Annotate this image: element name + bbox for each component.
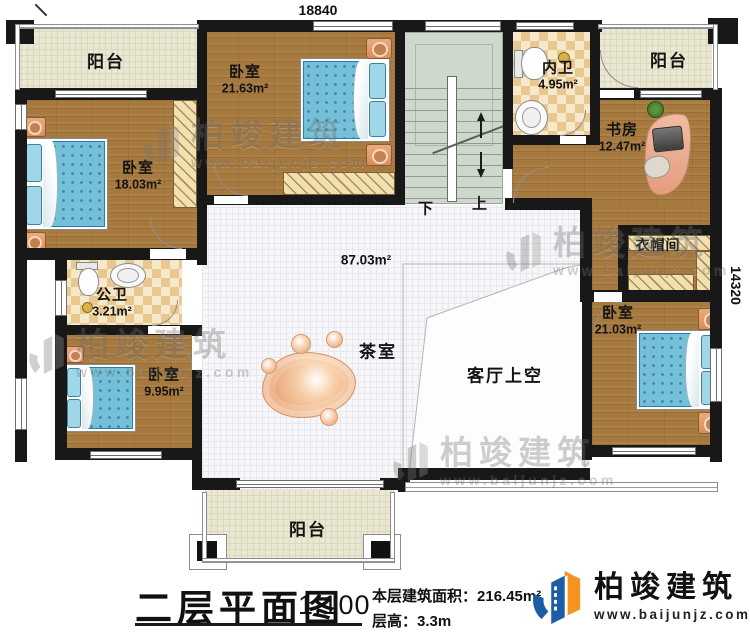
wall bbox=[618, 232, 628, 298]
wall bbox=[403, 468, 590, 480]
wall bbox=[395, 20, 405, 205]
floor-plan-canvas: 18840 14320 bbox=[0, 0, 750, 639]
room-area: 4.95m² bbox=[538, 77, 578, 91]
window bbox=[55, 90, 147, 98]
pebble bbox=[326, 331, 343, 348]
room-label-bedroom-right: 卧室21.03m² bbox=[595, 306, 642, 337]
logo-brand-text: 柏竣建筑 bbox=[594, 573, 750, 603]
wall bbox=[582, 300, 592, 460]
door-gap bbox=[148, 326, 180, 334]
nightstand bbox=[366, 38, 392, 59]
room-name: 卧室 bbox=[602, 306, 634, 323]
sink-icon bbox=[110, 263, 146, 288]
floor-area-label: 本层建筑面积： bbox=[372, 588, 477, 605]
balcony-railing bbox=[390, 492, 395, 562]
wall bbox=[710, 88, 722, 462]
bed-bedroom-left bbox=[22, 138, 108, 230]
room-name: 书房 bbox=[606, 123, 638, 140]
window bbox=[516, 22, 574, 30]
window bbox=[15, 104, 27, 130]
logo-building-icon bbox=[530, 568, 584, 626]
wall bbox=[618, 225, 722, 235]
bed-bedroom-bottom-left bbox=[64, 364, 136, 432]
door-gap bbox=[560, 136, 586, 144]
room-area: 9.95m² bbox=[144, 384, 184, 398]
room-label-tea-room: 茶室 bbox=[359, 342, 397, 361]
wall bbox=[192, 478, 240, 490]
sliding-door bbox=[236, 480, 384, 488]
nightstand bbox=[64, 346, 84, 363]
balcony-railing bbox=[202, 492, 207, 562]
drawing-scale: 1:100 bbox=[298, 590, 371, 621]
room-label-cloakroom: 衣帽间 bbox=[636, 238, 681, 254]
stair-arrow-up-stem bbox=[480, 120, 482, 138]
balcony-railing bbox=[713, 24, 718, 90]
door-gap bbox=[192, 336, 202, 370]
window bbox=[15, 378, 27, 430]
stair-up-text: 上 bbox=[472, 197, 488, 214]
dimension-top: 18840 bbox=[288, 2, 348, 18]
computer-monitor-icon bbox=[652, 125, 684, 152]
room-label-inner-bath: 内卫4.95m² bbox=[538, 61, 578, 92]
window bbox=[90, 451, 162, 459]
pebble bbox=[320, 408, 338, 426]
window bbox=[710, 348, 722, 402]
stair-label-up: 上 bbox=[472, 197, 488, 214]
door-gap bbox=[600, 90, 634, 98]
stair-label-down: 下 bbox=[418, 202, 434, 219]
balcony-column bbox=[363, 534, 401, 570]
bed-bedroom-right bbox=[636, 330, 720, 410]
room-area: 21.63m² bbox=[222, 81, 269, 95]
room-area: 3.21m² bbox=[92, 304, 132, 318]
title-underline bbox=[135, 623, 362, 626]
logo: 柏竣建筑 www.baijunjz.com bbox=[530, 568, 750, 626]
stair-arrow-down-icon bbox=[477, 169, 485, 178]
room-name: 卧室 bbox=[229, 65, 261, 82]
stair-arrow-down-stem bbox=[480, 152, 482, 170]
room-label-balcony-bottom: 阳台 bbox=[289, 520, 327, 539]
door-gap bbox=[214, 196, 248, 204]
pebble bbox=[291, 334, 311, 354]
room-name: 阳台 bbox=[650, 51, 688, 70]
room-name: 客厅上空 bbox=[467, 366, 543, 385]
balcony-column bbox=[189, 534, 227, 570]
wardrobe-bedroom-top bbox=[283, 172, 395, 195]
room-label-bedroom-top: 卧室21.63m² bbox=[222, 65, 269, 96]
room-label-living-void: 客厅上空 bbox=[467, 366, 543, 385]
window bbox=[313, 21, 393, 31]
logo-url-text: www.baijunjz.com bbox=[594, 607, 750, 622]
wall bbox=[512, 135, 600, 145]
hall-area-label: 87.03m² bbox=[341, 252, 391, 267]
balcony-railing bbox=[202, 558, 395, 563]
floor-height-info: 层高：3.3m bbox=[372, 610, 451, 631]
wall bbox=[580, 205, 592, 302]
hall-area-value: 87.03m² bbox=[341, 252, 391, 267]
window bbox=[612, 447, 696, 455]
pebble bbox=[261, 358, 277, 374]
window bbox=[425, 21, 501, 31]
nightstand bbox=[366, 144, 392, 166]
wall bbox=[197, 20, 207, 265]
room-name: 茶室 bbox=[359, 342, 397, 361]
window bbox=[640, 90, 702, 98]
stair-rail bbox=[447, 76, 457, 202]
bed-bedroom-top bbox=[300, 58, 390, 142]
floor-area-info: 本层建筑面积：216.45m² bbox=[372, 585, 541, 606]
wardrobe-bedroom-left bbox=[173, 100, 197, 208]
room-label-bedroom-left: 卧室18.03m² bbox=[115, 161, 162, 192]
room-name: 内卫 bbox=[542, 61, 574, 78]
room-label-study: 书房12.47m² bbox=[599, 123, 646, 154]
terrace-railing bbox=[405, 482, 718, 492]
room-name: 公卫 bbox=[96, 288, 128, 305]
room-label-public-bath: 公卫3.21m² bbox=[92, 288, 132, 319]
room-label-balcony-top-left: 阳台 bbox=[87, 52, 125, 71]
room-name: 卧室 bbox=[148, 368, 180, 385]
room-name: 阳台 bbox=[289, 520, 327, 539]
room-label-balcony-top-right: 阳台 bbox=[650, 51, 688, 70]
room-name: 卧室 bbox=[122, 161, 154, 178]
balcony-railing bbox=[598, 24, 716, 29]
room-name: 阳台 bbox=[87, 52, 125, 71]
room-area: 12.47m² bbox=[599, 139, 646, 153]
sink-icon bbox=[515, 100, 548, 135]
window bbox=[55, 280, 67, 316]
stair-down-text: 下 bbox=[418, 202, 434, 219]
plant-icon bbox=[648, 102, 663, 117]
room-area: 18.03m² bbox=[115, 177, 162, 191]
balcony-railing bbox=[15, 24, 199, 29]
door-gap bbox=[594, 292, 622, 302]
door-gap bbox=[150, 249, 186, 259]
room-name: 衣帽间 bbox=[636, 238, 681, 254]
room-area: 21.03m² bbox=[595, 322, 642, 336]
dimension-tick-left bbox=[35, 4, 48, 17]
balcony-railing bbox=[15, 24, 20, 90]
dimension-right: 14320 bbox=[728, 266, 744, 305]
wall bbox=[503, 20, 513, 145]
room-label-bedroom-bottom-left: 卧室9.95m² bbox=[144, 368, 184, 399]
